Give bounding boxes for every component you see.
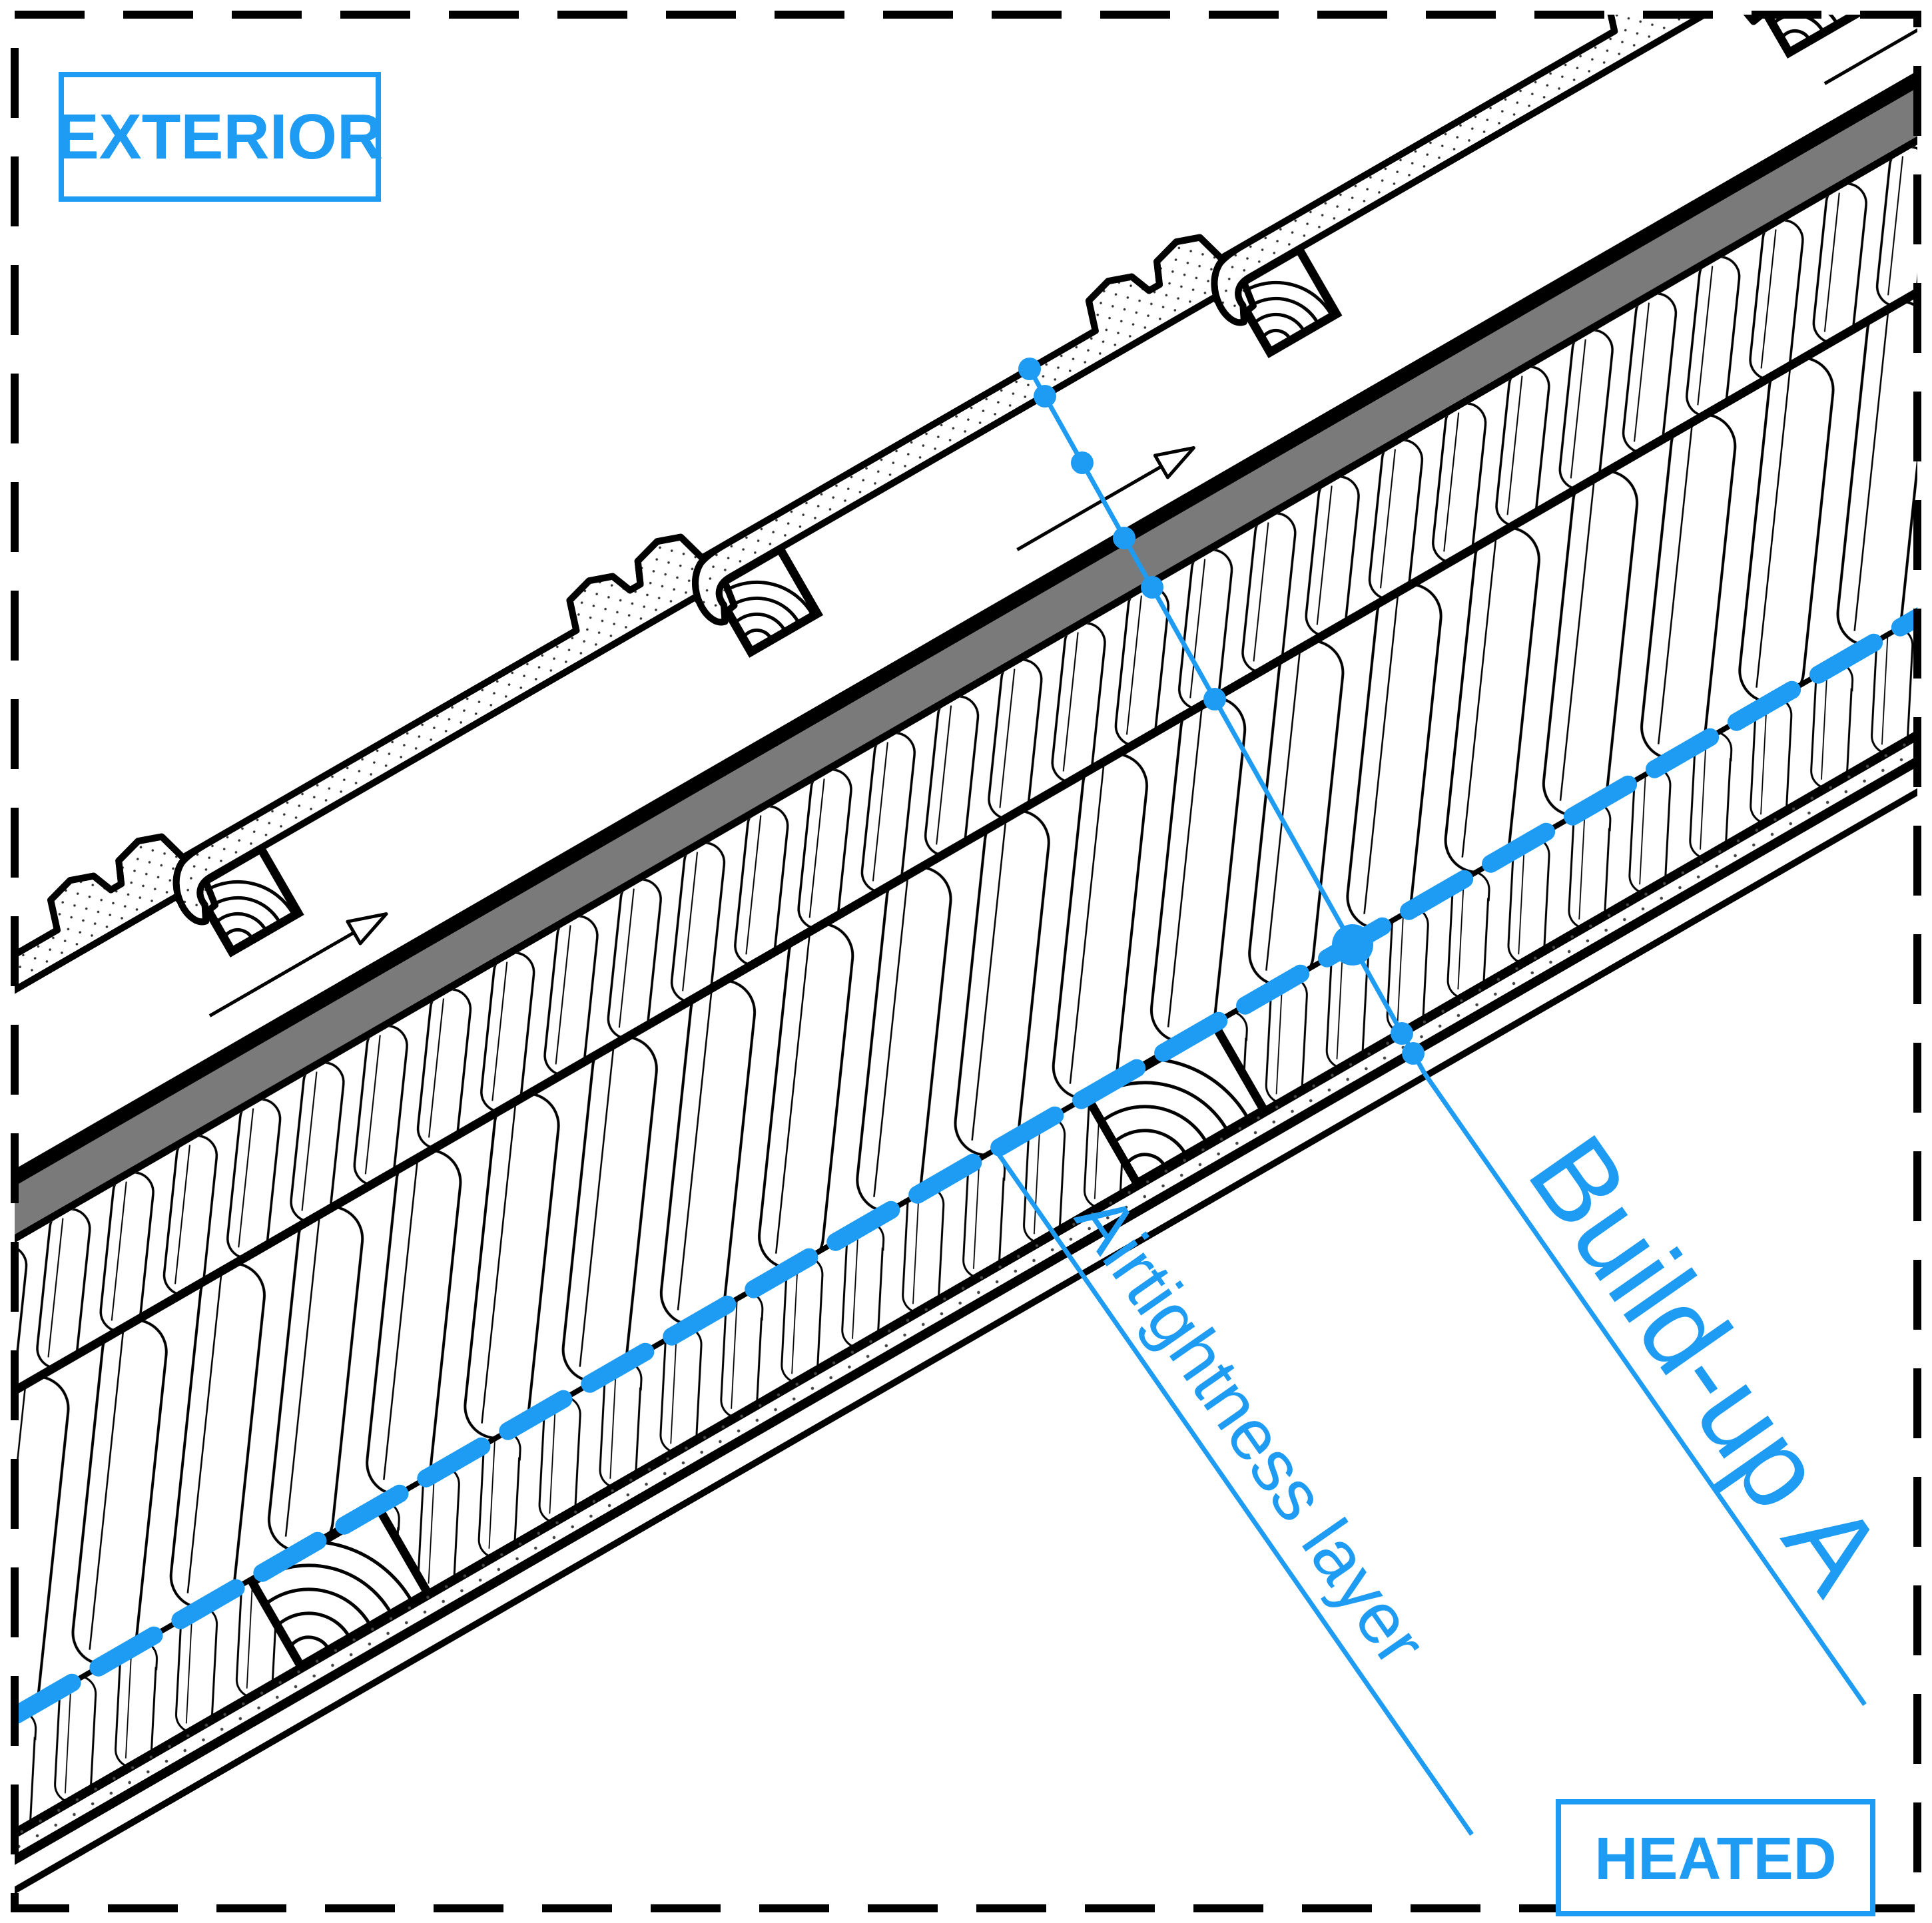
diagram-canvas: Build-up A Airtightness layer EXTERIOR H… — [0, 0, 1932, 1923]
roof-detail-diagram: Build-up A Airtightness layer EXTERIOR H… — [0, 0, 1932, 1923]
heated-zone-label: HEATED — [1558, 1802, 1873, 1914]
exterior-zone-label: EXTERIOR — [57, 75, 384, 199]
airtightness-crossing-dot — [1332, 924, 1373, 965]
heated-label-text: HEATED — [1594, 1826, 1836, 1892]
exterior-label-text: EXTERIOR — [57, 101, 384, 172]
